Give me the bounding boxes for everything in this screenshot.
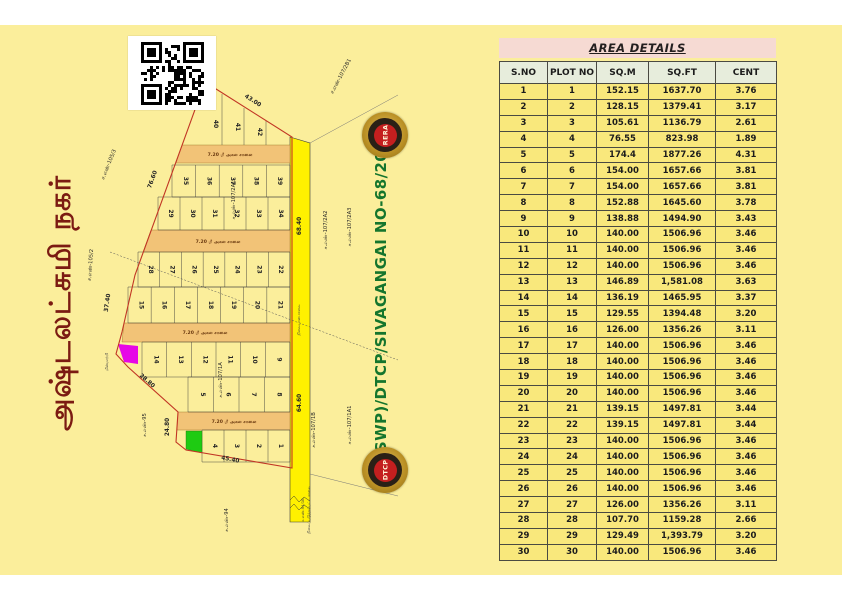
table-cell: 23 (548, 433, 597, 449)
document-page: அஷ்டலட்சுமி நகர் 7.20 மீ அகல சாலை7.20 மீ… (0, 0, 842, 595)
table-cell: 3.37 (716, 290, 777, 306)
table-row: 1313146.891,581.083.63 (500, 274, 777, 290)
svg-text:ச.எண்-105/2: ச.எண்-105/2 (87, 249, 95, 281)
area-table: S.NOPLOT NOSQ.MSQ.FTCENT 11152.151637.70… (499, 61, 777, 561)
table-cell: 28 (548, 513, 597, 529)
table-row: 3030140.001506.963.46 (500, 544, 777, 560)
svg-text:22: 22 (277, 265, 284, 273)
table-cell: 1465.95 (649, 290, 716, 306)
svg-text:24.80: 24.80 (165, 418, 171, 436)
table-row: 2222139.151497.813.44 (500, 417, 777, 433)
table-cell: 139.15 (597, 401, 649, 417)
table-cell: 3.43 (716, 211, 777, 227)
table-cell: 3.81 (716, 179, 777, 195)
table-cell: 1356.26 (649, 322, 716, 338)
table-cell: 10 (548, 227, 597, 243)
table-cell: 140.00 (597, 242, 649, 258)
table-cell: 3.63 (716, 274, 777, 290)
svg-text:42: 42 (256, 128, 263, 136)
table-cell: 1506.96 (649, 465, 716, 481)
svg-text:14: 14 (152, 355, 159, 363)
svg-text:ச.எண்-107/2B1: ச.எண்-107/2B1 (329, 58, 353, 95)
svg-text:4: 4 (211, 444, 218, 448)
table-cell: 16 (548, 322, 597, 338)
table-header-cell: S.NO (500, 62, 548, 84)
table-cell: 154.00 (597, 179, 649, 195)
table-cell: 140.00 (597, 338, 649, 354)
table-cell: 3.46 (716, 449, 777, 465)
table-cell: 138.88 (597, 211, 649, 227)
table-cell: 1506.96 (649, 449, 716, 465)
table-cell: 3.78 (716, 195, 777, 211)
table-cell: 1 (500, 84, 548, 100)
table-row: 2626140.001506.963.46 (500, 481, 777, 497)
table-cell: 3.46 (716, 258, 777, 274)
rera-seal: RERA (362, 112, 408, 158)
table-cell: 140.00 (597, 433, 649, 449)
table-cell: 22 (548, 417, 597, 433)
table-cell: 152.15 (597, 84, 649, 100)
table-cell: 23 (500, 433, 548, 449)
table-cell: 16 (500, 322, 548, 338)
dtcp-seal-core: DTCP (374, 459, 397, 482)
table-cell: 12 (500, 258, 548, 274)
svg-text:ச.எண்-95: ச.எண்-95 (142, 413, 148, 437)
table-cell: 3.76 (716, 84, 777, 100)
table-cell: 1877.26 (649, 147, 716, 163)
table-cell: 20 (548, 385, 597, 401)
svg-text:1: 1 (277, 444, 284, 448)
table-cell: 1506.96 (649, 385, 716, 401)
table-cell: 26 (500, 481, 548, 497)
table-cell: 21 (548, 401, 597, 417)
dtcp-seal-ring: DTCP (368, 453, 402, 487)
approval-number-text: L.P(SWP)/DTCP/SIVAGANGAI NO-68/2024 (372, 129, 390, 487)
table-cell: 3.46 (716, 354, 777, 370)
svg-text:43.00: 43.00 (243, 94, 262, 109)
svg-text:17: 17 (184, 301, 191, 309)
svg-text:26: 26 (190, 265, 197, 273)
table-header-cell: SQ.M (597, 62, 649, 84)
table-cell: 4.31 (716, 147, 777, 163)
table-row: 1010140.001506.963.46 (500, 227, 777, 243)
svg-text:10: 10 (251, 355, 258, 363)
table-row: 1616126.001356.263.11 (500, 322, 777, 338)
table-cell: 1494.90 (649, 211, 716, 227)
table-cell: 14 (548, 290, 597, 306)
svg-text:7.20 மீ அகல சாலை: 7.20 மீ அகல சாலை (208, 152, 253, 158)
table-row: 11152.151637.703.76 (500, 84, 777, 100)
table-cell: 3.20 (716, 528, 777, 544)
table-cell: 140.00 (597, 544, 649, 560)
svg-text:ச.எண்-107/1A: ச.எண்-107/1A (218, 362, 224, 398)
table-cell: 15 (548, 306, 597, 322)
svg-text:15: 15 (138, 301, 145, 309)
table-cell: 2.66 (716, 513, 777, 529)
table-cell: 18 (548, 354, 597, 370)
table-row: 2727126.001356.263.11 (500, 497, 777, 513)
table-cell: 19 (548, 370, 597, 386)
table-cell: 12 (548, 258, 597, 274)
table-cell: 1506.96 (649, 481, 716, 497)
table-cell: 140.00 (597, 227, 649, 243)
svg-text:19: 19 (230, 301, 237, 309)
table-cell: 136.19 (597, 290, 649, 306)
table-row: 2525140.001506.963.46 (500, 465, 777, 481)
table-cell: 3.46 (716, 433, 777, 449)
table-cell: 1497.81 (649, 417, 716, 433)
table-cell: 3.46 (716, 465, 777, 481)
table-cell: 154.00 (597, 163, 649, 179)
svg-text:7.20 மீ அகல சாலை: 7.20 மீ அகல சாலை (196, 239, 241, 245)
svg-text:11: 11 (226, 355, 233, 363)
table-cell: 3.20 (716, 306, 777, 322)
table-row: 1818140.001506.963.46 (500, 354, 777, 370)
table-cell: 20 (500, 385, 548, 401)
svg-text:ச.எண்-107/2A1: ச.எண்-107/2A1 (231, 181, 237, 220)
table-cell: 30 (548, 544, 597, 560)
dtcp-seal: DTCP (362, 447, 408, 493)
table-cell: 4 (548, 131, 597, 147)
table-cell: 1.89 (716, 131, 777, 147)
table-cell: 1159.28 (649, 513, 716, 529)
table-cell: 3 (548, 115, 597, 131)
table-cell: 3.11 (716, 322, 777, 338)
table-cell: 14 (500, 290, 548, 306)
table-cell: 17 (548, 338, 597, 354)
table-cell: 128.15 (597, 99, 649, 115)
table-cell: 7 (500, 179, 548, 195)
table-cell: 1,581.08 (649, 274, 716, 290)
table-cell: 3.46 (716, 544, 777, 560)
table-row: 77154.001657.663.81 (500, 179, 777, 195)
table-row: 1515129.551394.483.20 (500, 306, 777, 322)
rera-seal-label: RERA (381, 125, 389, 146)
table-cell: 6 (548, 163, 597, 179)
table-cell: 1506.96 (649, 544, 716, 560)
table-cell: 21 (500, 401, 548, 417)
svg-text:33: 33 (255, 209, 262, 217)
qr-code (128, 36, 216, 110)
svg-text:7.20 மீ அகல சாலை: 7.20 மீ அகல சாலை (212, 419, 257, 425)
table-cell: 1497.81 (649, 401, 716, 417)
svg-text:76.60: 76.60 (147, 170, 159, 189)
table-cell: 129.55 (597, 306, 649, 322)
table-row: 88152.881645.603.78 (500, 195, 777, 211)
table-cell: 3.17 (716, 99, 777, 115)
area-table-title: AREA DETAILS (499, 38, 776, 58)
table-cell: 27 (500, 497, 548, 513)
svg-text:34: 34 (277, 209, 284, 217)
table-cell: 1645.60 (649, 195, 716, 211)
table-cell: 107.70 (597, 513, 649, 529)
table-row: 1414136.191465.953.37 (500, 290, 777, 306)
table-cell: 17 (500, 338, 548, 354)
table-header-cell: SQ.FT (649, 62, 716, 84)
table-cell: 1506.96 (649, 258, 716, 274)
table-header-cell: PLOT NO (548, 62, 597, 84)
svg-text:ச.எண்-107/2A3: ச.எண்-107/2A3 (347, 208, 353, 247)
table-row: 66154.001657.663.81 (500, 163, 777, 179)
table-row: 1919140.001506.963.46 (500, 370, 777, 386)
svg-text:13: 13 (177, 355, 184, 363)
area-table-head: S.NOPLOT NOSQ.MSQ.FTCENT (500, 62, 777, 84)
table-cell: 29 (500, 528, 548, 544)
table-row: 2121139.151497.813.44 (500, 401, 777, 417)
table-row: 33105.611136.792.61 (500, 115, 777, 131)
svg-text:36: 36 (205, 177, 212, 185)
table-cell: 7 (548, 179, 597, 195)
table-cell: 1657.66 (649, 163, 716, 179)
svg-text:16: 16 (161, 301, 168, 309)
table-cell: 8 (548, 195, 597, 211)
table-cell: 139.15 (597, 417, 649, 433)
svg-text:12: 12 (202, 355, 209, 363)
table-cell: 24 (548, 449, 597, 465)
table-row: 2424140.001506.963.46 (500, 449, 777, 465)
svg-text:ச.எண்-94/1B: ச.எண்-94/1B (300, 498, 305, 522)
table-cell: 2 (500, 99, 548, 115)
svg-text:28: 28 (147, 265, 154, 273)
svg-text:நிலைப்படுத்தப்பட்ட சாலை: நிலைப்படுத்தப்பட்ட சாலை (306, 485, 311, 533)
table-cell: 25 (548, 465, 597, 481)
table-cell: 1657.66 (649, 179, 716, 195)
svg-text:3: 3 (233, 444, 240, 448)
table-cell: 8 (500, 195, 548, 211)
svg-text:64.60: 64.60 (297, 394, 303, 412)
table-cell: 5 (500, 147, 548, 163)
table-cell: 140.00 (597, 370, 649, 386)
table-cell: 1379.41 (649, 99, 716, 115)
svg-text:நிலையான சாலை: நிலையான சாலை (296, 304, 301, 336)
table-cell: 3.46 (716, 242, 777, 258)
table-cell: 3.46 (716, 338, 777, 354)
area-table-body: 11152.151637.703.7622128.151379.413.1733… (500, 84, 777, 561)
table-cell: 174.4 (597, 147, 649, 163)
table-row: 1212140.001506.963.46 (500, 258, 777, 274)
svg-text:9: 9 (276, 357, 283, 361)
table-cell: 11 (548, 242, 597, 258)
svg-text:39: 39 (276, 177, 283, 185)
table-cell: 9 (548, 211, 597, 227)
table-cell: 1136.79 (649, 115, 716, 131)
table-cell: 25 (500, 465, 548, 481)
table-cell: 22 (500, 417, 548, 433)
svg-text:31: 31 (211, 209, 218, 217)
svg-text:40: 40 (212, 120, 219, 128)
table-cell: 27 (548, 497, 597, 513)
layout-title-tamil: அஷ்டலட்சுமி நகர் (43, 175, 81, 431)
svg-text:5: 5 (199, 392, 206, 396)
svg-text:21: 21 (276, 301, 283, 309)
table-row: 1111140.001506.963.46 (500, 242, 777, 258)
table-cell: 4 (500, 131, 548, 147)
table-cell: 823.98 (649, 131, 716, 147)
table-row: 55174.41877.264.31 (500, 147, 777, 163)
table-header-row: S.NOPLOT NOSQ.MSQ.FTCENT (500, 62, 777, 84)
table-row: 2929129.491,393.793.20 (500, 528, 777, 544)
table-cell: 5 (548, 147, 597, 163)
svg-text:2: 2 (255, 444, 262, 448)
svg-text:35: 35 (182, 177, 189, 185)
svg-text:28.80: 28.80 (138, 373, 156, 390)
table-cell: 3.11 (716, 497, 777, 513)
table-cell: 19 (500, 370, 548, 386)
table-cell: 3.46 (716, 370, 777, 386)
table-cell: 1637.70 (649, 84, 716, 100)
table-row: 1717140.001506.963.46 (500, 338, 777, 354)
table-cell: 140.00 (597, 354, 649, 370)
table-cell: 26 (548, 481, 597, 497)
table-cell: 1,393.79 (649, 528, 716, 544)
table-cell: 29 (548, 528, 597, 544)
svg-text:29: 29 (167, 209, 174, 217)
svg-text:24: 24 (234, 265, 241, 273)
svg-text:41: 41 (234, 123, 241, 131)
table-cell: 129.49 (597, 528, 649, 544)
table-cell: 140.00 (597, 481, 649, 497)
table-cell: 11 (500, 242, 548, 258)
table-cell: 28 (500, 513, 548, 529)
table-cell: 1506.96 (649, 370, 716, 386)
table-cell: 1394.48 (649, 306, 716, 322)
svg-text:ச.எண்-105/3: ச.எண்-105/3 (100, 149, 118, 181)
table-cell: 140.00 (597, 449, 649, 465)
table-cell: 140.00 (597, 465, 649, 481)
table-cell: 6 (500, 163, 548, 179)
svg-text:6: 6 (224, 392, 231, 396)
area-table-section: AREA DETAILS S.NOPLOT NOSQ.MSQ.FTCENT 11… (499, 38, 776, 561)
table-cell: 3 (500, 115, 548, 131)
table-row: 2020140.001506.963.46 (500, 385, 777, 401)
table-row: 2828107.701159.282.66 (500, 513, 777, 529)
svg-text:30: 30 (189, 209, 196, 217)
svg-text:37.40: 37.40 (104, 293, 112, 312)
table-cell: 76.55 (597, 131, 649, 147)
table-cell: 3.46 (716, 385, 777, 401)
table-cell: 2.61 (716, 115, 777, 131)
table-cell: 1506.96 (649, 227, 716, 243)
table-cell: 10 (500, 227, 548, 243)
table-cell: 140.00 (597, 258, 649, 274)
svg-text:ச.எண்-107/2A2: ச.எண்-107/2A2 (323, 211, 329, 250)
svg-text:25: 25 (212, 265, 219, 273)
table-cell: 1356.26 (649, 497, 716, 513)
table-cell: 3.46 (716, 481, 777, 497)
table-cell: 3.44 (716, 417, 777, 433)
svg-text:23: 23 (255, 265, 262, 273)
site-plan-drawing: 7.20 மீ அகல சாலை7.20 மீ அகல சாலை7.20 மீ … (80, 32, 400, 565)
table-cell: 1506.96 (649, 338, 716, 354)
table-row: 22128.151379.413.17 (500, 99, 777, 115)
table-cell: 126.00 (597, 322, 649, 338)
table-cell: 140.00 (597, 385, 649, 401)
dtcp-seal-label: DTCP (381, 460, 389, 481)
svg-text:ச.எண்-107/1A1: ச.எண்-107/1A1 (347, 406, 353, 445)
table-row: 4476.55823.981.89 (500, 131, 777, 147)
table-cell: 24 (500, 449, 548, 465)
rera-seal-ring: RERA (368, 118, 402, 152)
table-cell: 105.61 (597, 115, 649, 131)
svg-text:மின்மாற்றி: மின்மாற்றி (104, 352, 109, 371)
table-cell: 2 (548, 99, 597, 115)
table-cell: 3.81 (716, 163, 777, 179)
qr-pattern (141, 42, 204, 105)
svg-text:ச.எண்-94: ச.எண்-94 (224, 507, 230, 531)
table-cell: 3.44 (716, 401, 777, 417)
table-cell: 18 (500, 354, 548, 370)
table-cell: 3.46 (716, 227, 777, 243)
table-cell: 1 (548, 84, 597, 100)
table-cell: 1506.96 (649, 242, 716, 258)
table-cell: 1506.96 (649, 433, 716, 449)
table-cell: 146.89 (597, 274, 649, 290)
svg-text:7: 7 (250, 392, 257, 396)
table-row: 2323140.001506.963.46 (500, 433, 777, 449)
table-cell: 9 (500, 211, 548, 227)
svg-text:7.20 மீ அகல சாலை: 7.20 மீ அகல சாலை (183, 330, 228, 336)
table-cell: 126.00 (597, 497, 649, 513)
svg-text:27: 27 (169, 265, 176, 273)
table-cell: 1506.96 (649, 354, 716, 370)
table-cell: 152.88 (597, 195, 649, 211)
layout-canvas: அஷ்டலட்சுமி நகர் 7.20 மீ அகல சாலை7.20 மீ… (0, 25, 842, 575)
table-cell: 13 (548, 274, 597, 290)
table-cell: 30 (500, 544, 548, 560)
svg-text:ச.எண்-107/1B: ச.எண்-107/1B (311, 412, 317, 448)
table-cell: 15 (500, 306, 548, 322)
table-header-cell: CENT (716, 62, 777, 84)
svg-text:45.40: 45.40 (221, 455, 240, 464)
svg-text:8: 8 (275, 392, 282, 396)
rera-seal-core: RERA (374, 124, 397, 147)
svg-text:38: 38 (253, 177, 260, 185)
svg-text:18: 18 (207, 301, 214, 309)
table-row: 99138.881494.903.43 (500, 211, 777, 227)
svg-text:68.40: 68.40 (297, 217, 303, 235)
table-cell: 13 (500, 274, 548, 290)
